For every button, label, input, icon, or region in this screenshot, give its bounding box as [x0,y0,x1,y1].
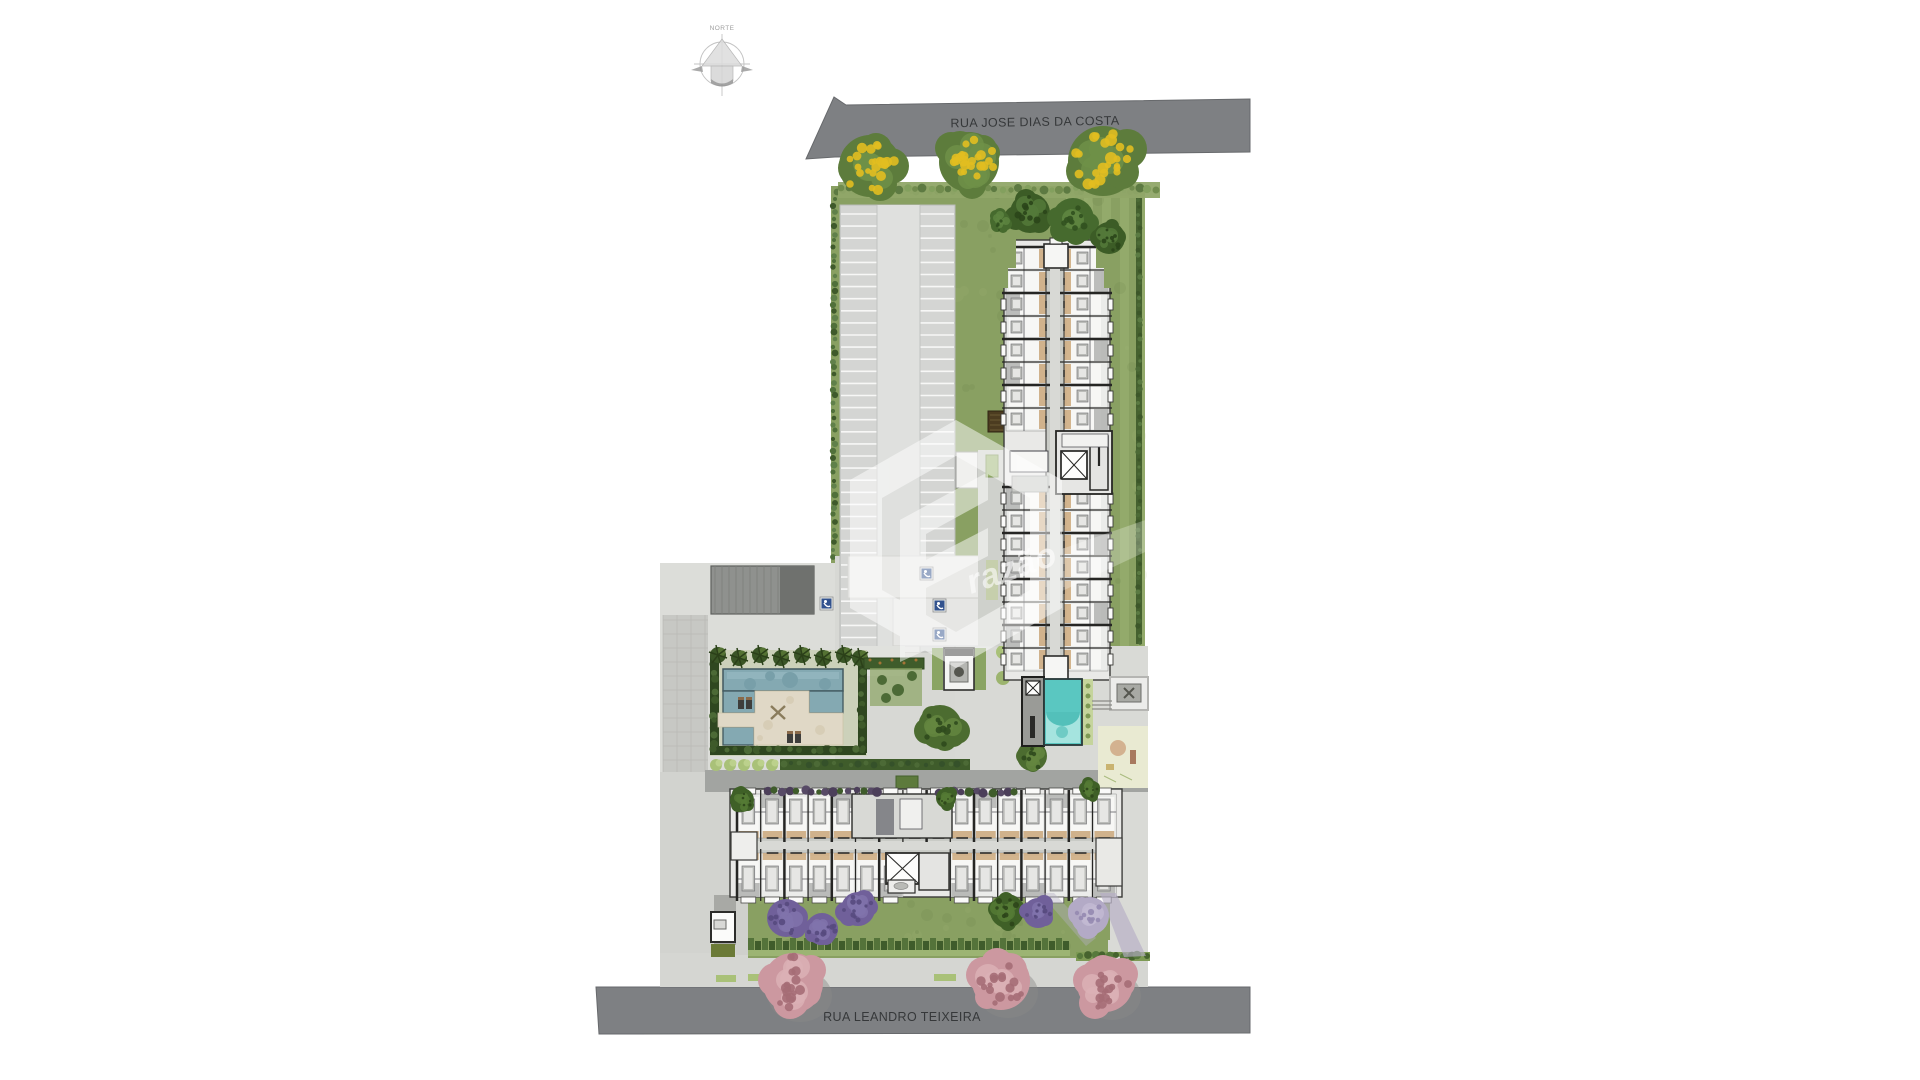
svg-text:RUA LEANDRO TEIXEIRA: RUA LEANDRO TEIXEIRA [823,1010,981,1024]
svg-text:NORTE: NORTE [710,25,735,32]
